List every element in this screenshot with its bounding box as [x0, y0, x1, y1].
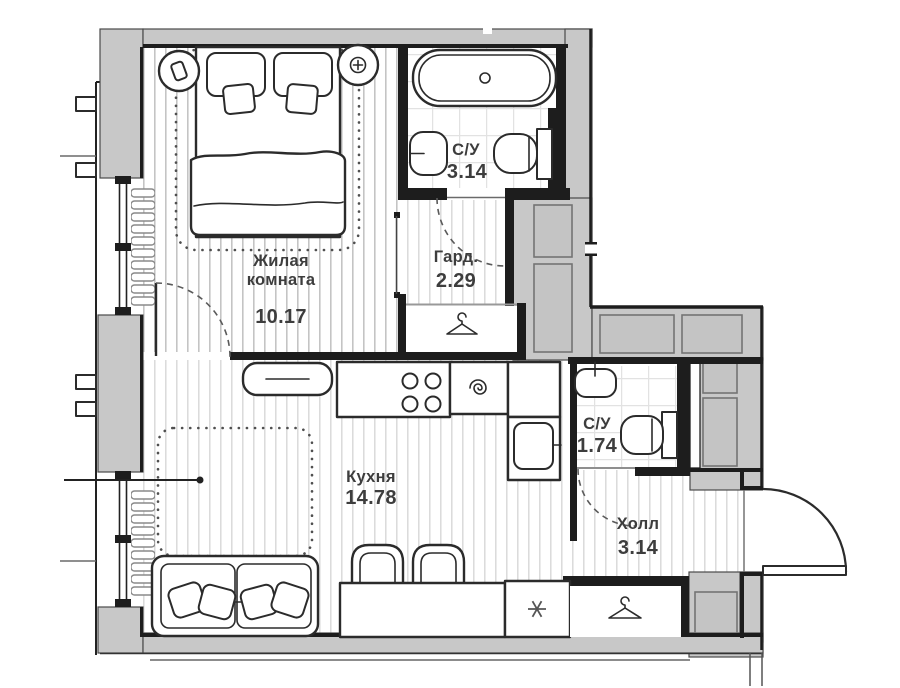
- door-jamb-face: [740, 572, 744, 638]
- toilet-bath-top: [494, 129, 552, 179]
- facade: [60, 82, 101, 655]
- wall-pier-left-bottom: [98, 607, 143, 653]
- dining-counter: [340, 583, 505, 637]
- nightstand-left: [159, 51, 199, 91]
- label-hall-area: 3.14: [618, 537, 659, 559]
- ventilation-shaft: [534, 264, 572, 352]
- window-mullion: [115, 535, 131, 543]
- wall-closet-right: [517, 303, 526, 360]
- toilet-tank: [662, 412, 677, 458]
- ventilation-shaft: [600, 315, 674, 353]
- facade-tab: [76, 163, 96, 177]
- wall-joint-tick: [585, 254, 597, 257]
- burner: [403, 397, 418, 412]
- wall-bedroom-bath: [398, 44, 408, 200]
- wall-wardrobe-left: [398, 294, 406, 360]
- label-hall-name: Холл: [617, 515, 660, 533]
- label-bath-hall-area: 1.74: [577, 435, 618, 457]
- label-bath-top-area: 3.14: [447, 161, 488, 183]
- wall-pier-left-mid: [98, 315, 143, 472]
- stove-counter: [337, 362, 450, 417]
- sink-bath-top: [410, 132, 447, 175]
- window-mullion: [115, 599, 131, 607]
- wall-living-kitchen: [230, 352, 526, 360]
- sink-counter: [450, 362, 508, 414]
- label-living-area: 10.17: [255, 306, 307, 328]
- burner: [403, 374, 418, 389]
- wall-closet-top: [563, 576, 689, 586]
- wall-joint-gap: [483, 28, 492, 34]
- ventilation-shaft: [682, 315, 742, 353]
- annotation-leader-dot: [197, 477, 204, 484]
- entrance-door-leaf: [763, 566, 846, 575]
- neighbor-wall-right: [750, 653, 762, 686]
- wall-bath-top-bottom-left: [398, 188, 447, 200]
- washer-cabinet: [508, 417, 561, 480]
- stool: [413, 545, 464, 583]
- double-bed: [191, 47, 345, 237]
- stool: [352, 545, 403, 583]
- hall-closet: [570, 586, 681, 637]
- toilet-tank: [537, 129, 552, 179]
- entrance-door: [763, 489, 846, 575]
- label-living-name-1: Жилая: [252, 252, 309, 270]
- ventilation-shaft: [695, 592, 737, 633]
- wall-bath-hall-right: [677, 358, 690, 476]
- window-mullion: [115, 243, 131, 251]
- floor-plan-drawing: Жилая комната 10.17 С/У 3.14 Гард. 2.29 …: [0, 0, 900, 688]
- toilet-bowl: [494, 134, 537, 173]
- ventilation-shaft: [534, 205, 572, 257]
- radiator: [131, 187, 155, 307]
- label-wardrobe-area: 2.29: [436, 270, 476, 292]
- window-mullion: [115, 176, 131, 184]
- sofa: [152, 556, 318, 636]
- floor-plan: Жилая комната 10.17 С/У 3.14 Гард. 2.29 …: [0, 0, 900, 688]
- washer-basin: [514, 423, 553, 469]
- bed-cushion: [223, 84, 256, 115]
- label-kitchen-name: Кухня: [346, 468, 396, 486]
- wall-bath-top-right: [556, 44, 566, 110]
- ventilation-shaft: [703, 398, 737, 466]
- wall-joint-tick: [585, 242, 597, 245]
- toilet-bowl: [621, 416, 663, 454]
- door-jamb-face: [740, 470, 744, 490]
- wall-kitchen-top-right: [568, 357, 763, 364]
- counter-sink: [450, 362, 508, 414]
- bed-cushion: [286, 84, 318, 115]
- facade-tab: [76, 97, 96, 111]
- facade-tab: [76, 402, 96, 416]
- wall-face-left-2: [140, 315, 143, 472]
- nightstand-right: [338, 45, 378, 85]
- wall-face-left-3: [140, 607, 143, 637]
- label-wardrobe-name: Гард.: [434, 248, 479, 266]
- label-bath-hall-name: С/У: [583, 415, 611, 433]
- label-kitchen-area: 14.78: [345, 487, 397, 509]
- burner: [426, 374, 441, 389]
- bathtub: [413, 50, 556, 106]
- air-gap-strip: [690, 362, 700, 468]
- ventilation-shaft: [703, 363, 737, 393]
- entrance-door-swing-area: [763, 489, 846, 572]
- wall-wardrobe-right: [505, 188, 514, 306]
- wall-face-left-1: [140, 47, 143, 178]
- wall-closet-right2: [681, 576, 689, 637]
- facade-tab: [76, 375, 96, 389]
- bed-blanket: [191, 151, 345, 235]
- wardrobe-closet: [406, 305, 517, 353]
- label-living-name-2: комната: [247, 271, 316, 289]
- window-mullion: [115, 307, 131, 315]
- facade-section-marks: [60, 156, 96, 561]
- burner: [426, 397, 441, 412]
- toilet-bath-hall: [621, 412, 677, 458]
- label-bath-top-name: С/У: [452, 141, 480, 159]
- counter-cabinet: [508, 362, 560, 417]
- wall-pier-top-left: [100, 29, 143, 178]
- window-mullion: [115, 471, 131, 479]
- fridge-niche: [505, 581, 570, 637]
- closet-interior: [570, 586, 681, 637]
